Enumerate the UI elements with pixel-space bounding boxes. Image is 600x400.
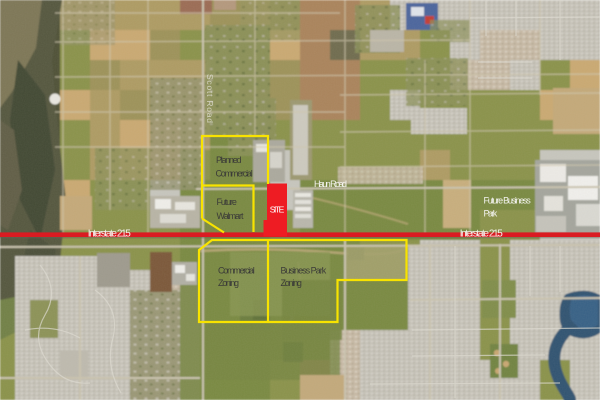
svg-text:Park: Park xyxy=(484,209,498,219)
svg-text:Commercial: Commercial xyxy=(216,169,253,179)
svg-text:Zoning: Zoning xyxy=(218,278,239,288)
svg-text:Future Business: Future Business xyxy=(484,196,532,206)
svg-text:SITE: SITE xyxy=(270,205,285,215)
svg-text:Scott Road: Scott Road xyxy=(205,74,215,123)
svg-text:Business Park: Business Park xyxy=(281,266,327,276)
svg-text:Zoning: Zoning xyxy=(281,278,302,288)
svg-text:Future: Future xyxy=(217,197,237,207)
svg-text:Interstate 215: Interstate 215 xyxy=(88,228,131,239)
svg-text:Planned: Planned xyxy=(216,155,242,165)
svg-text:Interstate 215: Interstate 215 xyxy=(460,228,503,239)
svg-text:Haun Road: Haun Road xyxy=(314,179,347,189)
svg-text:Walmart: Walmart xyxy=(217,211,244,221)
svg-text:Commercial: Commercial xyxy=(218,266,255,276)
